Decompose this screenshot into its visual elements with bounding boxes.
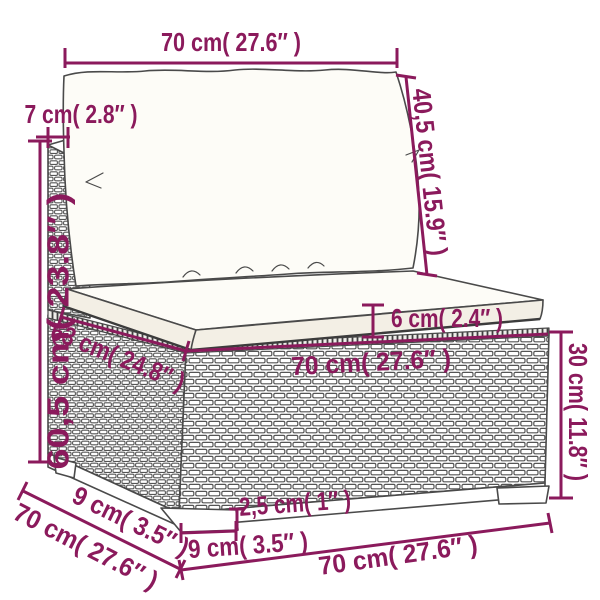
- measure-base-height: 30 cm( 11.8″ ): [549, 332, 593, 498]
- leg-height-label: 2,5 cm( 1″ ): [238, 484, 352, 522]
- measure-back-width: 70 cm( 27.6″ ): [65, 27, 397, 68]
- back-thickness-label: 7 cm( 2.8″ ): [25, 99, 138, 129]
- front-width-label: 70 cm( 27.6″ ): [317, 529, 480, 581]
- dimension-diagram-page: 70 cm( 27.6″ ) 40,5 cm( 15.9″ ) 7 cm( 2.…: [0, 0, 600, 600]
- base-height-label: 30 cm( 11.8″ ): [563, 343, 593, 481]
- back-width-label: 70 cm( 27.6″ ): [161, 27, 301, 57]
- front-right-leg: [497, 486, 549, 504]
- cushion-thickness-label: 6 cm( 2.4″ ): [391, 303, 503, 333]
- measure-leg-height: 2,5 cm( 1″ ): [229, 484, 352, 531]
- sofa-drawing: [48, 69, 549, 532]
- sofa-dimension-diagram: 70 cm( 27.6″ ) 40,5 cm( 15.9″ ) 7 cm( 2.…: [0, 0, 600, 600]
